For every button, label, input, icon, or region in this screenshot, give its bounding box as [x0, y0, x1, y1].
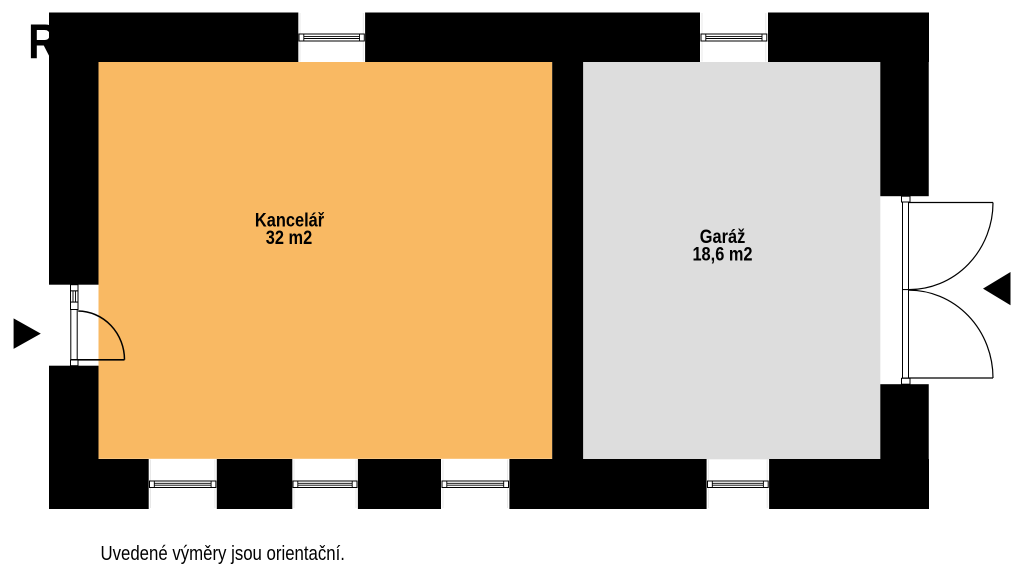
- svg-text:Uvedené výměry jsou orientační: Uvedené výměry jsou orientační.: [101, 541, 345, 564]
- svg-text:18,6 m2: 18,6 m2: [692, 243, 752, 265]
- svg-text:32 m2: 32 m2: [266, 227, 312, 249]
